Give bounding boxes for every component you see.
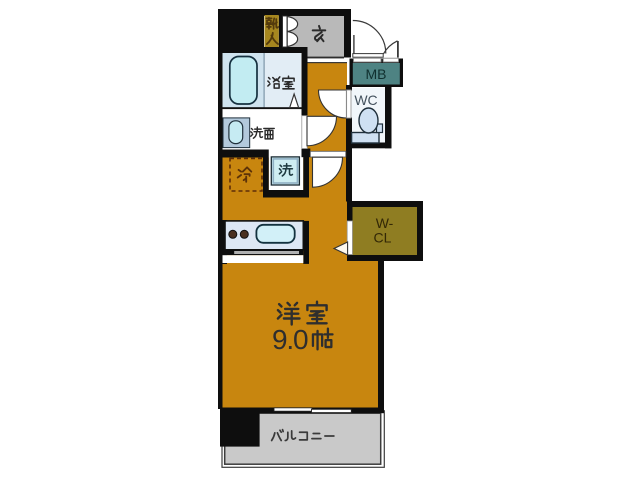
svg-text:WC: WC (354, 92, 377, 108)
svg-text:9.0: 9.0 (272, 324, 308, 355)
svg-text:CL: CL (374, 230, 392, 246)
svg-text:MB: MB (366, 66, 387, 82)
